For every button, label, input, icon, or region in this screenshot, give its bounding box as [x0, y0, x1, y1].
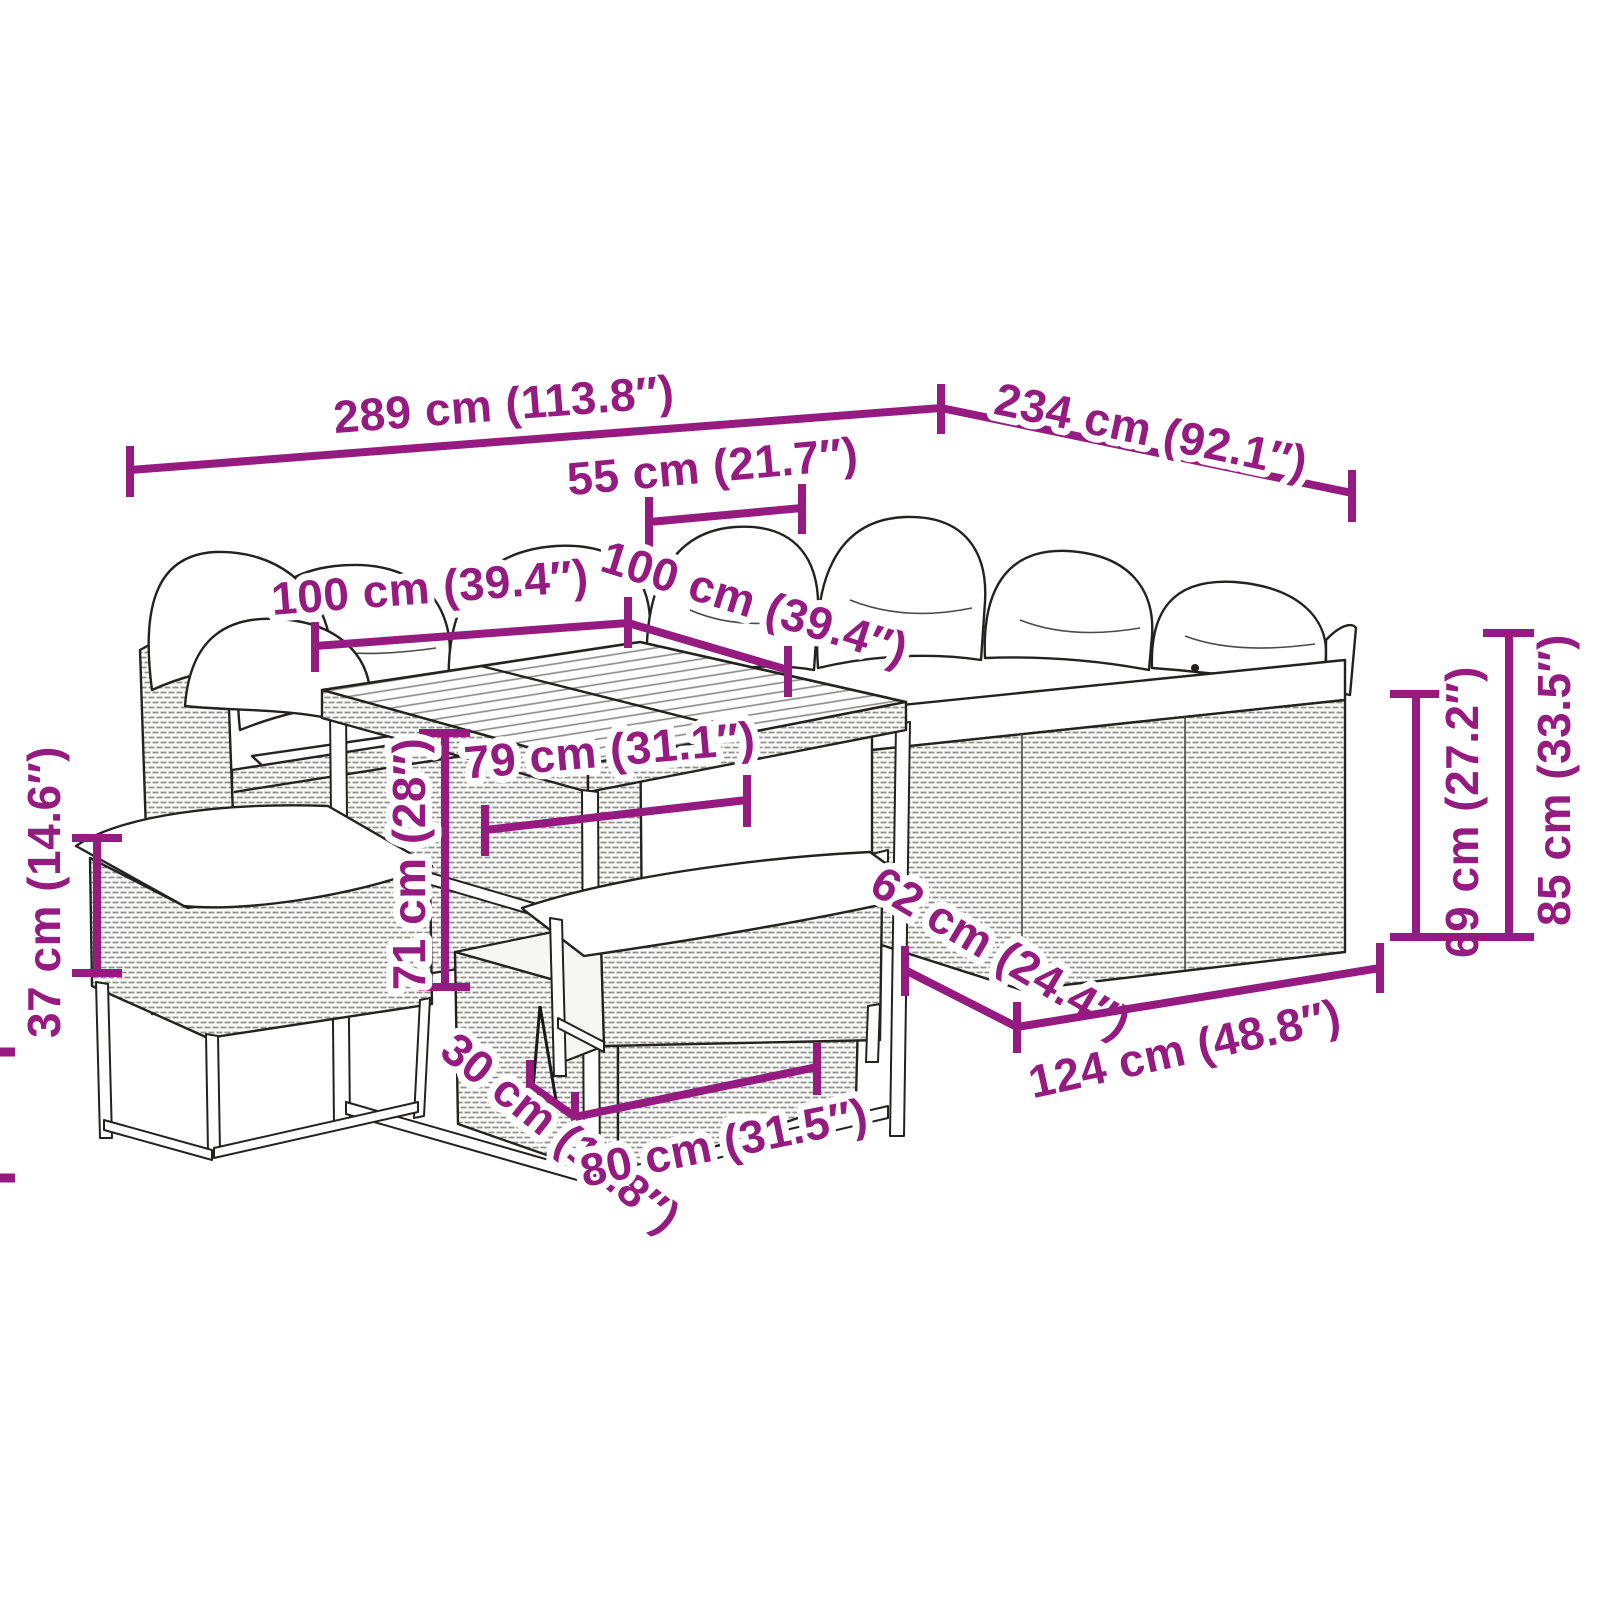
dimension-234cm: 234 cm (92.1″): [941, 372, 1352, 522]
dimension-label-69cm: 69 cm (27.2″): [1436, 666, 1488, 958]
dimension-label-85cm: 85 cm (33.5″): [1528, 634, 1580, 926]
back-cushion: [985, 551, 1153, 670]
dimension-diagram-page: 289 cm (113.8″) 234 cm (92.1″) 55 cm (21…: [0, 0, 1600, 1600]
bench-leg: [96, 982, 112, 1138]
dimension-label-55cm: 55 cm (21.7″): [565, 427, 860, 505]
dimension-diagram: 289 cm (113.8″) 234 cm (92.1″) 55 cm (21…: [0, 0, 1600, 1600]
cushion-button: [1191, 664, 1199, 672]
dimension-label-234cm: 234 cm (92.1″): [990, 372, 1312, 488]
dimension-label-71cm: 71 cm (28″): [383, 738, 435, 991]
bench-crossbar: [214, 1102, 418, 1158]
dimension-55cm: 55 cm (21.7″): [565, 427, 860, 547]
dimension-69cm: 69 cm (27.2″): [1390, 666, 1488, 958]
dimension-label-37cm: 37 cm (14.6″): [18, 746, 70, 1038]
left-bench: [76, 805, 432, 1160]
bench-leg: [206, 1034, 220, 1152]
bench-leg: [866, 1004, 880, 1062]
crop-tick: [0, 1052, 15, 1178]
bench-crossbar: [104, 1120, 212, 1160]
bench-leg: [414, 998, 430, 1118]
